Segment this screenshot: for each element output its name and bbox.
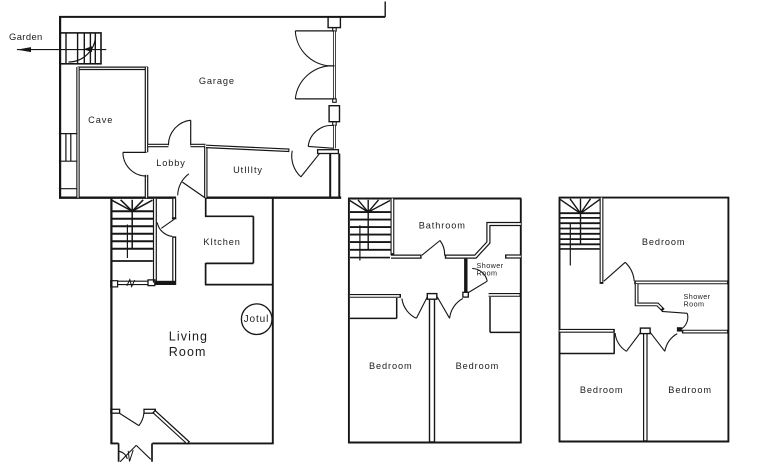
svg-text:Bedroom: Bedroom bbox=[456, 361, 500, 371]
svg-text:Bedroom: Bedroom bbox=[642, 237, 686, 247]
svg-text:Bathroom: Bathroom bbox=[419, 220, 466, 230]
svg-text:KItchen: KItchen bbox=[203, 237, 240, 247]
svg-text:Lobby: Lobby bbox=[156, 158, 186, 168]
svg-text:Garage: Garage bbox=[199, 76, 235, 86]
svg-text:UtIlIty: UtIlIty bbox=[233, 165, 263, 175]
svg-text:Living: Living bbox=[169, 330, 208, 344]
svg-text:Garden: Garden bbox=[9, 31, 43, 42]
svg-text:Room: Room bbox=[684, 300, 705, 309]
svg-text:Bedroom: Bedroom bbox=[369, 361, 413, 371]
svg-text:Bedroom: Bedroom bbox=[580, 385, 624, 395]
svg-text:Bedroom: Bedroom bbox=[668, 385, 712, 395]
svg-text:Room: Room bbox=[477, 269, 498, 278]
svg-text:Jotul: Jotul bbox=[244, 314, 270, 325]
svg-text:Room: Room bbox=[169, 345, 207, 359]
svg-text:Cave: Cave bbox=[88, 115, 113, 125]
